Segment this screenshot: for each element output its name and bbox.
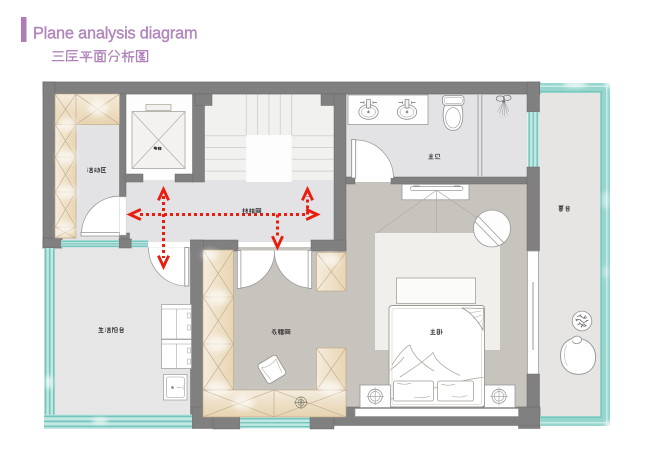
svg-text:Plane analysis diagram: Plane analysis diagram [33, 25, 197, 43]
